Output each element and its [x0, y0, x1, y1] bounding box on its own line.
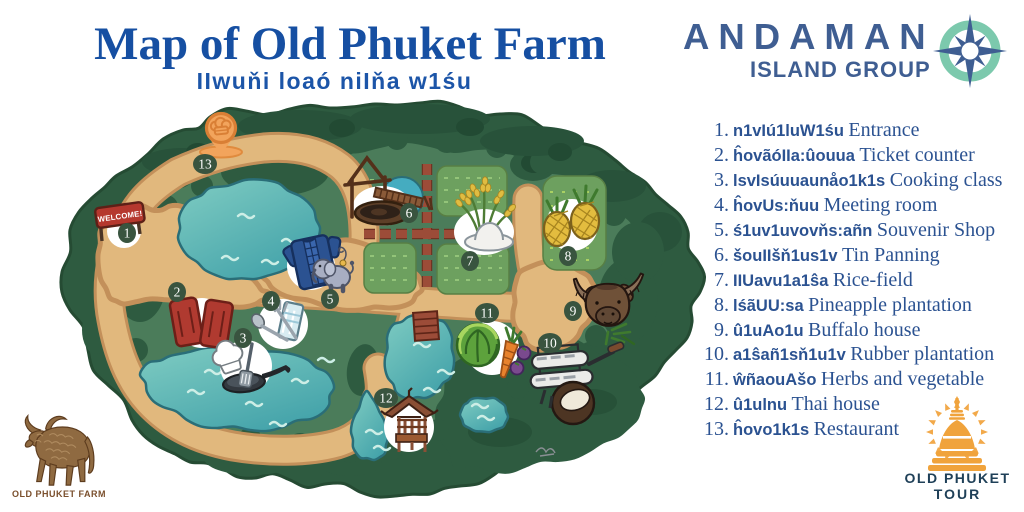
svg-text:10: 10: [543, 336, 557, 351]
svg-text:4: 4: [268, 294, 275, 309]
svg-text:2: 2: [174, 285, 181, 300]
svg-text:7: 7: [467, 254, 474, 269]
svg-text:1: 1: [124, 226, 131, 241]
svg-text:9: 9: [570, 304, 577, 319]
svg-text:5: 5: [327, 292, 334, 307]
svg-text:12: 12: [379, 391, 393, 406]
svg-text:8: 8: [565, 249, 572, 264]
svg-text:6: 6: [406, 206, 413, 221]
svg-text:13: 13: [198, 157, 212, 172]
svg-text:11: 11: [481, 306, 494, 321]
svg-text:3: 3: [240, 331, 247, 346]
